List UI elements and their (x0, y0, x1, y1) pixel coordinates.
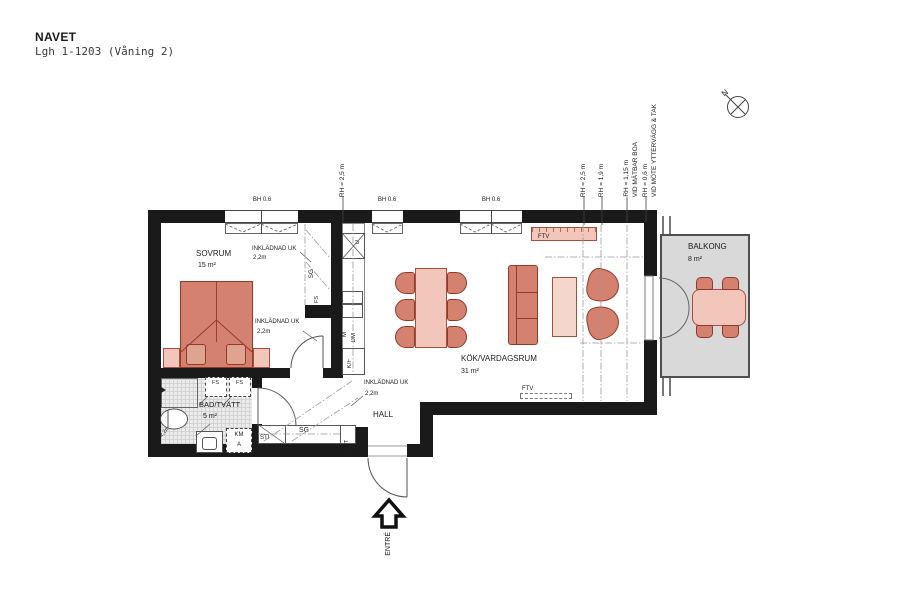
entrance-arrow-icon (375, 500, 403, 527)
balcony-chair (722, 277, 739, 290)
bulkhead-height: 2,2m (253, 255, 266, 262)
armchair (584, 266, 622, 305)
radiator-label: FTV (538, 234, 549, 241)
bathroom-label: BAD/TVÄTT (199, 401, 240, 409)
entrance-label: ENTRÉ (384, 532, 393, 556)
fs-cabinet: FS (205, 377, 227, 397)
entrance-door (368, 446, 407, 497)
bed-pillow (226, 344, 246, 365)
dining-chair (447, 326, 467, 348)
balcony-table (692, 289, 746, 326)
compass-icon: N (720, 87, 749, 117)
dining-chair (395, 272, 415, 294)
wall-closet-stub (305, 305, 331, 318)
washing-machine-label: KM (227, 432, 251, 439)
sink-box (342, 304, 363, 318)
bulkhead-height: 2,2m (257, 329, 270, 336)
wall-hall-stub (355, 427, 368, 457)
sofa-back-line (516, 266, 517, 344)
bedroom-wardrobe-label: SG (307, 269, 316, 278)
wall-right (644, 340, 657, 415)
sink-box (342, 291, 363, 304)
radiator-dashed (520, 393, 572, 399)
compass-north-label: N (720, 87, 730, 98)
bulkhead-height: 2,2m (365, 391, 378, 398)
wall-bottom-right (420, 402, 657, 415)
fs-cabinet-label: FS (236, 380, 243, 386)
washing-machine: KM A (226, 428, 252, 453)
ceiling-height-label: RH = 0,6 m (641, 164, 650, 197)
window-mullion (261, 210, 262, 234)
dining-chair (447, 272, 467, 294)
fs-cabinet-label: FS (212, 380, 219, 386)
dining-chair (395, 299, 415, 321)
closet-divider (285, 425, 286, 444)
bedroom-door (291, 336, 323, 368)
oven-label: U (354, 240, 363, 244)
radiator: FTV (531, 227, 597, 241)
balcony-railing-stub-bottom (662, 378, 671, 396)
wall-bedroom-south (323, 368, 331, 378)
wall-bath-east (252, 378, 262, 388)
hall-label: HALL (373, 411, 393, 420)
window-mullion (491, 210, 492, 234)
balcony-railing-stub-top (662, 216, 671, 234)
ceiling-height-label: RH = 2,5 m (338, 164, 347, 197)
window-height-label: BH 0.6 (467, 197, 515, 204)
cleaning-closet-label: STI (260, 435, 269, 442)
dining-table (415, 268, 447, 348)
wall-right (644, 210, 657, 276)
radiator-label: FTV (522, 386, 533, 393)
dining-chair (447, 299, 467, 321)
balcony-chair (722, 325, 739, 338)
wall-top (522, 210, 657, 223)
ceiling-height-label: RH = 1,15 m (622, 160, 631, 197)
livingroom-area: 31 m² (461, 368, 479, 376)
coffee-table (552, 277, 577, 337)
wall-bottom (148, 444, 368, 457)
fs-cabinet: FS (229, 377, 251, 397)
oven-box (342, 233, 365, 259)
balcony-chair (696, 325, 713, 338)
nightstand (253, 348, 270, 368)
livingroom-label: KÖK/VARDAGSRUM (461, 355, 537, 364)
apartment-id: Lgh 1-1203 (Våning 2) (35, 45, 174, 58)
balcony-area: 8 m² (688, 256, 702, 264)
armchair (584, 303, 622, 342)
wall-left (148, 210, 161, 457)
bulkhead-label: INKLÄDNAD UK (252, 246, 296, 253)
page-title: NAVET (35, 30, 76, 44)
balcony-label: BALKONG (688, 243, 727, 252)
window (372, 210, 403, 223)
bed-pillow (186, 344, 206, 365)
ceiling-height-label: RH = 1,9 m (597, 164, 606, 197)
closet-divider (340, 425, 341, 444)
micro-label: M (341, 332, 350, 337)
hall-wardrobe-label: SG (299, 427, 309, 435)
bulkhead-label: INKLÄDNAD UK (364, 380, 408, 387)
wall-top (403, 210, 460, 223)
washing-machine-letter: A (227, 442, 251, 449)
sofa-seat-line (517, 292, 537, 293)
bulkhead-label: INKLÄDNAD UK (255, 319, 299, 326)
window-sill (372, 223, 403, 234)
shower-enclosure (161, 378, 198, 408)
balcony-chair (696, 277, 713, 290)
ceiling-height-note: VID MÄTBAR BOA (631, 142, 640, 197)
bedroom-area: 15 m² (198, 262, 216, 270)
ceiling-height-note: VID MÖTE YTTERVÄGG & TAK (650, 104, 659, 197)
floor-plan: NAVET Lgh 1-1203 (Våning 2) BALKONG 8 m²… (0, 0, 900, 600)
bedroom-fs-label: FS (313, 296, 322, 303)
bedroom-label: SOVRUM (196, 250, 231, 259)
washbasin-bowl (202, 437, 217, 450)
dining-chair (395, 326, 415, 348)
sofa-seat-line (517, 318, 537, 319)
dishwasher-label: DM (350, 333, 359, 342)
wall-top (298, 210, 372, 223)
window-height-label: BH 0.6 (238, 197, 286, 204)
window-height-label: BH 0.6 (363, 197, 411, 204)
bathroom-area: 5 m² (203, 413, 217, 421)
ceiling-height-label: RH = 2,5 m (579, 164, 588, 197)
fridge-label: K/F (346, 359, 355, 368)
nightstand (163, 348, 180, 368)
bathroom-door (258, 388, 296, 426)
electrical-cabinet-label: EL/IT (343, 440, 352, 453)
sofa (508, 265, 538, 345)
